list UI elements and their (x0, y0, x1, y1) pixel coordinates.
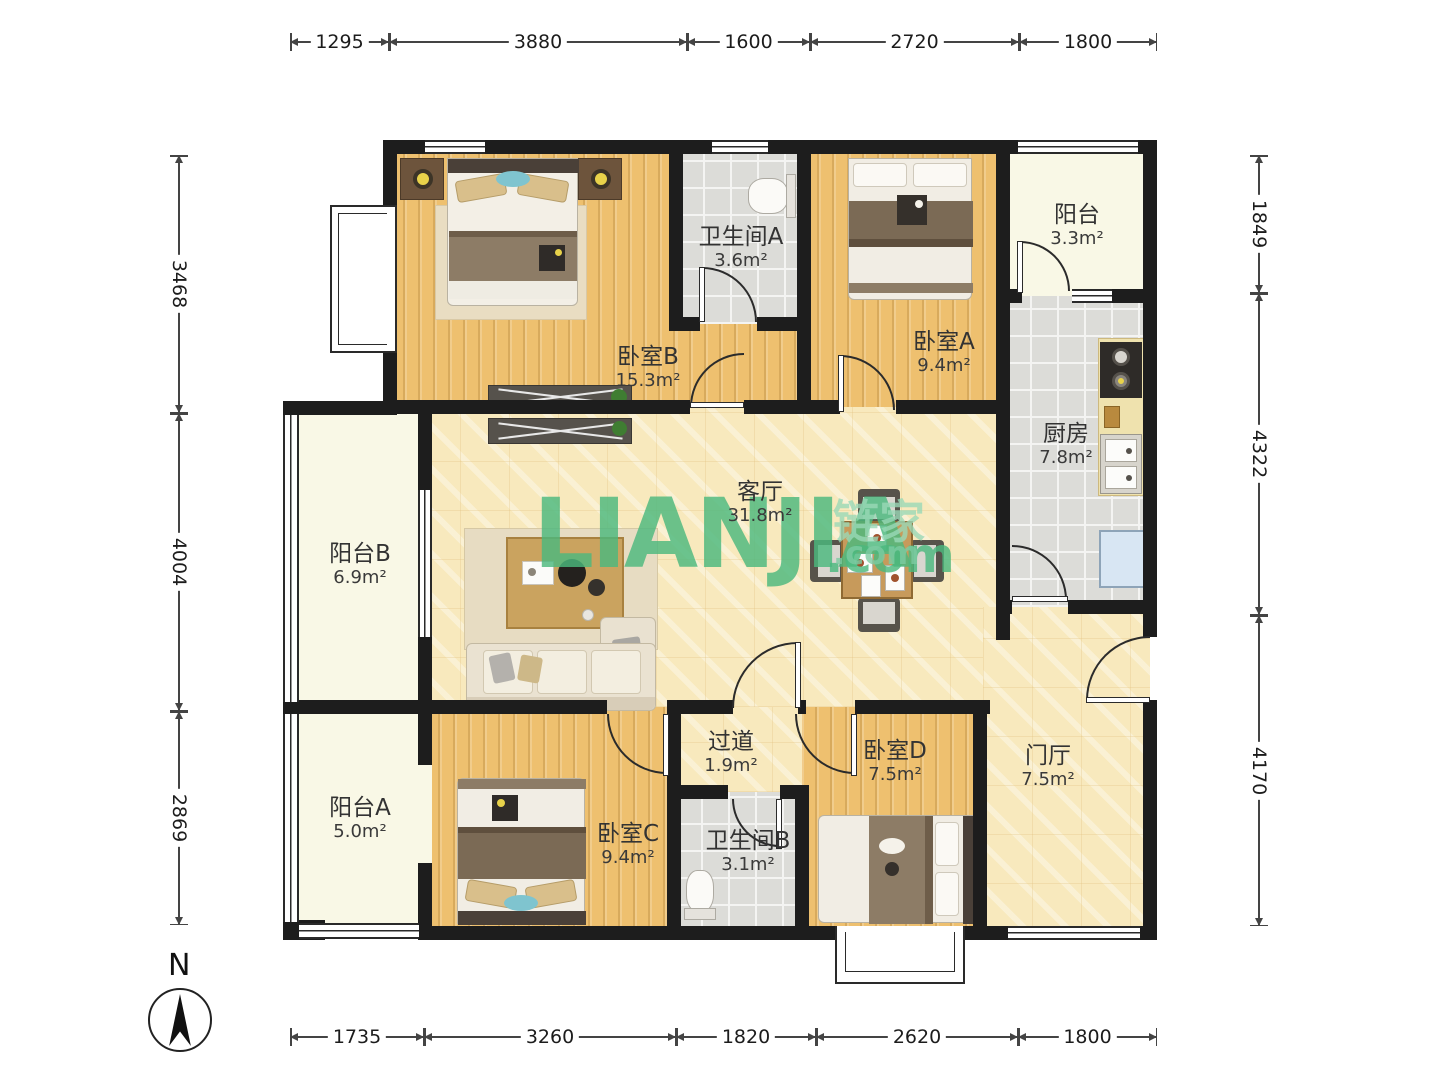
dining-chair-left (810, 540, 844, 582)
bay-window-bedroom-d (835, 926, 965, 984)
wall (283, 401, 397, 415)
wall (996, 140, 1010, 614)
dim-top-4: 2720 (810, 33, 1019, 51)
toilet-bathroom-b (686, 870, 714, 912)
room-label-foyer: 门厅7.5m² (1021, 743, 1074, 791)
window-foyer-south (1008, 926, 1140, 940)
room-label-bedroom-b: 卧室B15.3m² (616, 344, 681, 392)
coffee-table (506, 537, 624, 629)
bay-window-bedroom-b (330, 205, 397, 353)
wall (418, 637, 432, 714)
dining-chair-top (858, 489, 900, 523)
window (1018, 140, 1138, 154)
tv-stand-living (488, 418, 632, 444)
window (712, 140, 768, 154)
room-label-balcony-b: 阳台B6.9m² (329, 541, 391, 589)
dining-table (841, 521, 913, 599)
window (1072, 289, 1112, 303)
window-balcony-a-south (299, 923, 419, 939)
room-label-bedroom-c: 卧室C9.4m² (597, 821, 659, 869)
wall (896, 400, 1010, 414)
dim-top-2: 3880 (389, 33, 687, 51)
wall (1068, 600, 1157, 614)
wall (744, 400, 797, 414)
bed-bedroom-c (457, 778, 585, 924)
fridge-icon (1099, 530, 1145, 588)
wall (855, 700, 990, 714)
room-label-bedroom-a: 卧室A9.4m² (913, 329, 975, 377)
toilet-tank-bathroom-b (684, 908, 716, 920)
wall (383, 400, 690, 414)
dim-left-3: 2869 (170, 711, 188, 925)
wall (667, 700, 733, 714)
window (425, 140, 485, 154)
dim-bottom-4: 2620 (816, 1028, 1018, 1046)
door-leaf (699, 267, 705, 322)
wall (1140, 926, 1157, 940)
wall (996, 600, 1010, 640)
wall (667, 714, 681, 926)
sliding-door-balcony-b (418, 490, 432, 637)
dim-bottom-3: 1820 (676, 1028, 816, 1046)
wall (795, 785, 809, 926)
wall (797, 154, 811, 414)
door-leaf (1086, 697, 1150, 703)
dining-chair-bottom (858, 598, 900, 632)
dim-top-5: 1800 (1019, 33, 1157, 51)
wall (418, 414, 432, 490)
window-balcony-b-west (283, 415, 299, 702)
compass-icon (148, 988, 212, 1052)
compass-north-label: N (168, 948, 190, 983)
dim-right-1: 1849 (1250, 155, 1268, 293)
dim-bottom-5: 1800 (1018, 1028, 1157, 1046)
door-leaf (851, 714, 857, 776)
dim-left-2: 4004 (170, 413, 188, 711)
bed-bedroom-d (818, 815, 976, 923)
door-leaf (663, 714, 669, 776)
dim-bottom-2: 3260 (424, 1028, 676, 1046)
wall (1143, 700, 1157, 940)
door-leaf (1012, 596, 1068, 602)
wall (1112, 289, 1157, 303)
window-balcony-a-west (283, 714, 299, 922)
kitchen-small-appliance (1104, 406, 1120, 428)
room-label-bedroom-d: 卧室D7.5m² (863, 738, 927, 786)
dining-chair-right (910, 540, 944, 582)
door-leaf (838, 355, 844, 412)
floor-passage-balcony-a (418, 765, 432, 863)
dim-bottom-1: 1735 (290, 1028, 424, 1046)
door-leaf (1017, 241, 1023, 293)
floor-plan: LIANJIA .com 链家 .com 卧室B15.3m² 卫生间A3.6m²… (0, 0, 1440, 1080)
toilet-bathroom-a (748, 178, 788, 214)
room-label-balcony: 阳台3.3m² (1050, 202, 1103, 250)
plant-icon (612, 421, 627, 436)
room-label-bathroom-b: 卫生间B3.1m² (706, 828, 791, 876)
wall (1143, 140, 1157, 637)
wall (418, 863, 432, 926)
wall (283, 700, 432, 714)
room-label-balcony-a: 阳台A5.0m² (329, 795, 391, 843)
door-leaf (795, 642, 801, 708)
wall (418, 714, 432, 765)
wall (973, 700, 987, 926)
wall (418, 926, 835, 940)
bed-bedroom-a (848, 158, 972, 300)
sink-icon (1100, 434, 1142, 494)
wall (418, 700, 607, 714)
dim-left-1: 3468 (170, 155, 188, 413)
room-label-kitchen: 厨房7.8m² (1039, 421, 1092, 469)
wall (965, 926, 1008, 940)
door-leaf (690, 402, 744, 408)
nightstand-right (578, 158, 622, 200)
room-label-living-room: 客厅31.8m² (728, 479, 793, 527)
wall (669, 154, 683, 331)
toilet-tank-bathroom-a (786, 174, 796, 218)
stove-icon (1100, 342, 1142, 398)
dim-right-2: 4322 (1250, 293, 1268, 615)
room-label-bathroom-a: 卫生间A3.6m² (699, 224, 784, 272)
compass-arrow-icon (163, 994, 197, 1046)
dim-right-3: 4170 (1250, 615, 1268, 926)
dim-top-3: 1600 (687, 33, 810, 51)
dim-top-1: 1295 (290, 33, 389, 51)
nightstand-left (400, 158, 444, 200)
bed-bedroom-b (447, 158, 578, 306)
room-label-hallway: 过道1.9m² (704, 729, 757, 777)
